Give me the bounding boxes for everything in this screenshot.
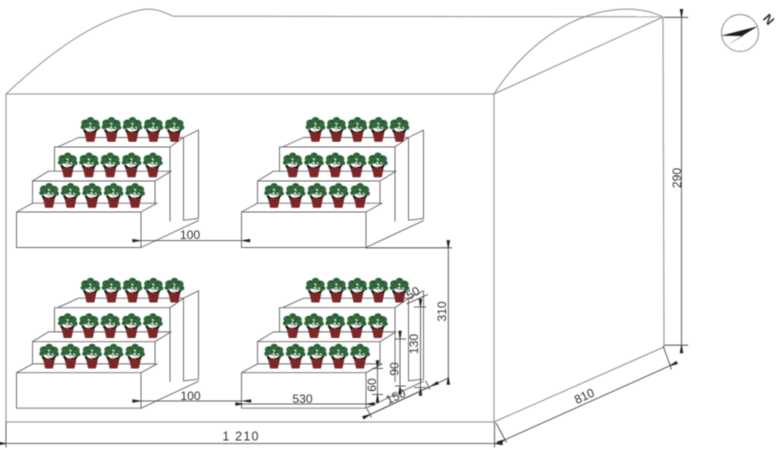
svg-text:100: 100 [180, 228, 201, 242]
svg-text:60: 60 [365, 378, 379, 392]
svg-text:290: 290 [670, 168, 684, 189]
svg-text:1 210: 1 210 [222, 430, 259, 444]
svg-text:130: 130 [407, 334, 421, 355]
svg-text:530: 530 [292, 392, 313, 406]
svg-text:90: 90 [388, 362, 402, 376]
svg-text:310: 310 [435, 301, 449, 322]
svg-text:100: 100 [180, 389, 201, 403]
